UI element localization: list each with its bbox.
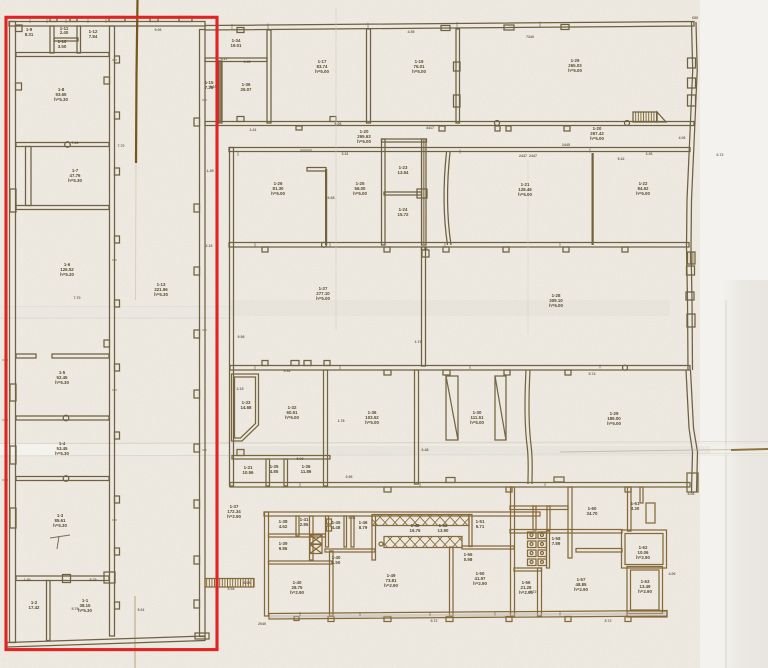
svg-text:6.06: 6.06 [335, 122, 342, 126]
svg-text:14.68: 14.68 [241, 405, 253, 410]
svg-text:5.72: 5.72 [431, 619, 438, 623]
svg-text:19.01: 19.01 [231, 43, 243, 48]
svg-text:h=2.90: h=2.90 [290, 590, 304, 595]
svg-text:4.62: 4.62 [279, 524, 288, 529]
svg-text:5.79: 5.79 [90, 578, 97, 582]
svg-text:4.06: 4.06 [688, 492, 695, 496]
svg-text:5.72: 5.72 [530, 590, 537, 594]
svg-text:7.89: 7.89 [552, 541, 561, 546]
svg-text:2040: 2040 [258, 622, 266, 626]
svg-text:h=5.00: h=5.00 [315, 69, 329, 74]
svg-text:3.31: 3.31 [342, 152, 349, 156]
svg-text:h=5.00: h=5.00 [285, 415, 299, 420]
svg-text:9.42: 9.42 [618, 157, 625, 161]
svg-text:h=5.00: h=5.00 [365, 420, 379, 425]
svg-text:4.85: 4.85 [270, 469, 279, 474]
svg-text:h=2.90: h=2.90 [384, 583, 398, 588]
svg-text:7.70: 7.70 [118, 144, 125, 148]
svg-text:h=5.30: h=5.30 [60, 272, 74, 277]
svg-text:7340: 7340 [526, 35, 534, 39]
svg-text:6.06: 6.06 [244, 581, 251, 585]
svg-text:7.70: 7.70 [74, 296, 81, 300]
svg-text:15.72: 15.72 [398, 212, 410, 217]
svg-text:h=5.00: h=5.00 [470, 420, 484, 425]
svg-text:h=2.90: h=2.90 [473, 581, 487, 586]
svg-text:13.64: 13.64 [398, 170, 410, 175]
svg-text:4417: 4417 [426, 126, 434, 130]
svg-text:6.72: 6.72 [717, 153, 724, 157]
svg-text:5.01: 5.01 [138, 608, 145, 612]
svg-text:13.90: 13.90 [438, 528, 450, 533]
svg-text:h=5.00: h=5.00 [590, 136, 604, 141]
svg-text:4.48: 4.48 [332, 525, 341, 530]
svg-text:9.86: 9.86 [279, 546, 288, 551]
svg-text:1.20: 1.20 [24, 578, 31, 582]
svg-text:1-35: 1-35 [206, 169, 213, 173]
svg-text:h=5.30: h=5.30 [53, 523, 67, 528]
svg-text:3.36: 3.36 [646, 152, 653, 156]
svg-text:h=5.00: h=5.00 [518, 192, 532, 197]
svg-text:8.31: 8.31 [25, 32, 34, 37]
svg-text:7.26: 7.26 [72, 141, 79, 145]
svg-text:3.50: 3.50 [58, 44, 67, 49]
svg-text:h=5.00: h=5.00 [271, 191, 285, 196]
svg-text:650: 650 [692, 16, 698, 20]
svg-text:h=5.30: h=5.30 [78, 608, 92, 613]
svg-text:h=5.00: h=5.00 [568, 68, 582, 73]
svg-text:2.85: 2.85 [300, 522, 309, 527]
svg-text:8.79: 8.79 [359, 525, 368, 530]
svg-text:h=5.00: h=5.00 [549, 303, 563, 308]
svg-text:5.09: 5.09 [297, 457, 304, 461]
svg-text:h=5.00: h=5.00 [353, 191, 367, 196]
svg-text:6.68: 6.68 [328, 196, 335, 200]
svg-text:9.32: 9.32 [284, 369, 291, 373]
svg-text:h=5.30: h=5.30 [154, 292, 168, 297]
svg-text:9.98: 9.98 [238, 335, 245, 339]
svg-text:26.07: 26.07 [241, 87, 253, 92]
svg-text:h=5.00: h=5.00 [636, 191, 650, 196]
svg-text:2.15: 2.15 [237, 387, 244, 391]
svg-text:h=5.00: h=5.00 [607, 421, 621, 426]
svg-text:11.86: 11.86 [301, 469, 312, 474]
svg-text:5.74: 5.74 [589, 372, 596, 376]
svg-text:7.84: 7.84 [89, 34, 98, 39]
svg-text:16.76: 16.76 [410, 528, 422, 533]
svg-text:2.41: 2.41 [250, 128, 257, 132]
svg-text:17.42: 17.42 [29, 605, 41, 610]
svg-text:h=5.30: h=5.30 [68, 178, 82, 183]
svg-text:2.45: 2.45 [421, 247, 428, 251]
svg-text:5.04: 5.04 [228, 587, 235, 591]
svg-text:h=5.30: h=5.30 [54, 97, 68, 102]
svg-text:2445: 2445 [562, 143, 570, 147]
svg-text:h=2.90: h=2.90 [636, 555, 650, 560]
svg-text:h=2.90: h=2.90 [227, 514, 241, 519]
svg-text:h=2.90: h=2.90 [638, 589, 652, 594]
svg-text:4.06: 4.06 [679, 136, 686, 140]
svg-text:9.06: 9.06 [155, 28, 162, 32]
svg-text:h=5.00: h=5.00 [412, 69, 426, 74]
svg-text:2.40: 2.40 [60, 30, 69, 35]
svg-text:4.45: 4.45 [244, 60, 251, 64]
svg-text:4.55: 4.55 [408, 30, 415, 34]
svg-text:h=5.30: h=5.30 [55, 380, 69, 385]
svg-text:5.71: 5.71 [476, 524, 485, 529]
svg-text:4.06: 4.06 [669, 572, 676, 576]
svg-text:6.01: 6.01 [349, 516, 356, 520]
svg-text:2447: 2447 [519, 154, 527, 158]
svg-text:3.30: 3.30 [631, 506, 640, 511]
svg-text:1.74: 1.74 [415, 340, 422, 344]
svg-text:h=5.30: h=5.30 [55, 451, 69, 456]
svg-text:5.72: 5.72 [605, 619, 612, 623]
svg-text:1.50: 1.50 [332, 560, 341, 565]
svg-text:2447: 2447 [529, 154, 537, 158]
svg-text:h=5.00: h=5.00 [357, 139, 371, 144]
svg-text:5.79: 5.79 [72, 607, 79, 611]
svg-text:6.48: 6.48 [422, 448, 429, 452]
svg-text:2.15: 2.15 [206, 244, 213, 248]
svg-text:1.78: 1.78 [338, 419, 345, 423]
svg-text:h=5.00: h=5.00 [316, 296, 330, 301]
svg-text:4.17: 4.17 [221, 57, 228, 61]
svg-text:10.56: 10.56 [243, 470, 255, 475]
svg-text:0.98: 0.98 [464, 557, 473, 562]
svg-text:h=2.90: h=2.90 [574, 587, 588, 592]
svg-text:34.70: 34.70 [587, 511, 599, 516]
svg-text:3.96: 3.96 [346, 475, 353, 479]
